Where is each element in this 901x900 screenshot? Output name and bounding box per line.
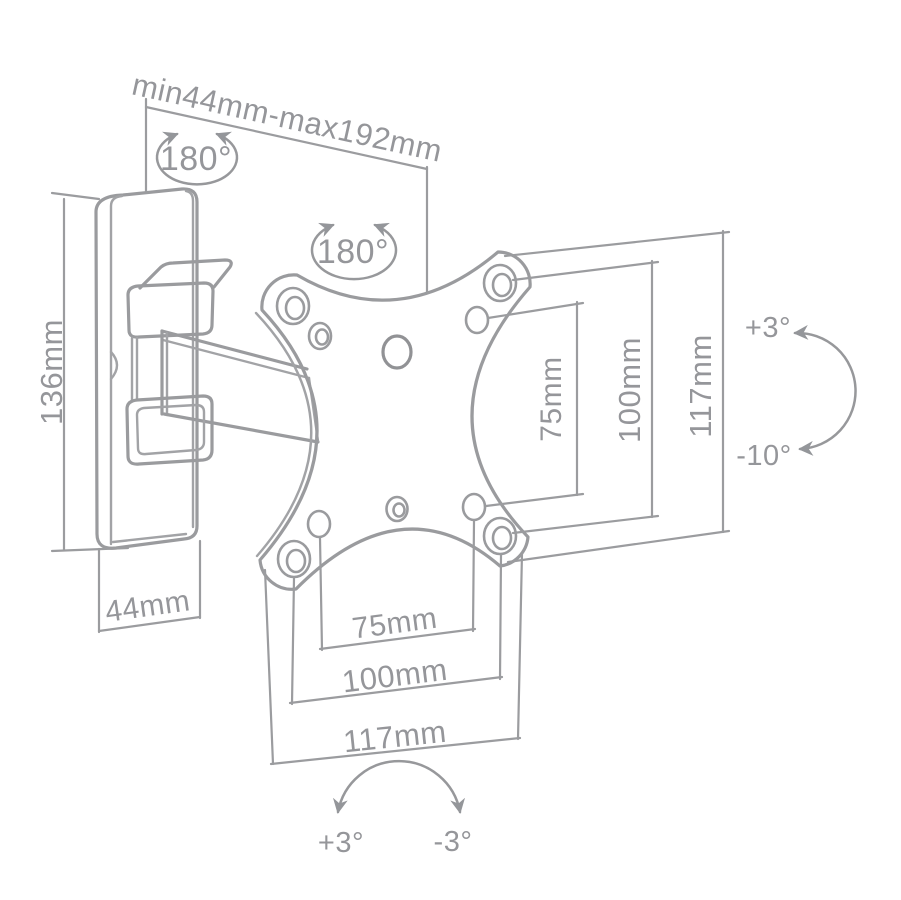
vesa-v117-label: 117mm (683, 334, 718, 438)
arm-assembly (127, 260, 318, 464)
tilt-arc-path (795, 333, 856, 449)
vesa-hole-outer-rim (286, 297, 304, 319)
vesa-h75-label: 75mm (350, 602, 439, 646)
wall-plate-bevel-right (186, 191, 193, 527)
dimension-vesa-horizontal-75: 75mm (320, 521, 475, 650)
extension-line (513, 516, 658, 533)
level-arc-path (338, 761, 460, 812)
vesa-plate (256, 252, 530, 589)
vesa-hole-outer-rim (493, 527, 511, 549)
tv-wall-mount-dimension-diagram: min44mm-max192mm 180° 180° 136mm 44mm 75… (0, 0, 901, 900)
extension-line (518, 553, 522, 739)
dimension-plate-depth: 44mm (99, 541, 200, 632)
vesa-v100-label: 100mm (612, 337, 647, 443)
vesa-hole-inner (463, 494, 485, 520)
tilt-down-label: -10° (736, 440, 792, 472)
level-arc: +3° -3° (318, 761, 473, 859)
vesa-plate-outline (260, 252, 530, 589)
level-left-label: +3° (318, 827, 364, 859)
dimension-plate-height: 136mm (34, 193, 128, 551)
tilt-up-label: +3° (745, 312, 791, 344)
extension-line (508, 531, 729, 562)
plate-depth-label: 44mm (103, 584, 192, 629)
dimension-vesa-vertical-75: 75mm (486, 302, 583, 506)
extension-line (500, 555, 501, 679)
swivel-wall-label: 180° (160, 140, 232, 178)
extension-line (488, 303, 583, 318)
vesa-hole-inner (308, 511, 330, 537)
wall-plate (96, 189, 197, 548)
swivel-arc-arm: 180° (312, 225, 396, 279)
extension-line (292, 578, 294, 704)
vesa-bottom-center-hole-rim (394, 504, 405, 517)
extension-line (473, 521, 474, 631)
vesa-h117-label: 117mm (342, 714, 449, 760)
swivel-arm-label: 180° (317, 233, 389, 271)
vesa-v75-label: 75mm (535, 356, 568, 441)
vesa-hole-outer-rim (287, 550, 305, 572)
extension-line (486, 494, 583, 506)
hinge-block-front-face (128, 283, 213, 337)
level-right-label: -3° (434, 826, 473, 858)
vesa-center-hole (383, 336, 411, 368)
vesa-hole-inner-rim (316, 330, 328, 345)
arm-top-face-edge (163, 340, 309, 378)
vesa-h100-label: 100mm (340, 652, 449, 700)
extension-line (320, 538, 322, 650)
swivel-arc-wall: 180° (157, 134, 237, 184)
vesa-hole-outer-rim (493, 274, 511, 296)
tilt-arc: +3° -10° (736, 312, 855, 472)
extension-line (52, 193, 99, 199)
extension-line (505, 232, 729, 256)
extension-line (513, 262, 658, 280)
extension-line (265, 570, 273, 764)
vesa-hole-inner (466, 307, 488, 333)
plate-height-label: 136mm (34, 319, 69, 425)
arm-bottom-edge (164, 414, 318, 442)
